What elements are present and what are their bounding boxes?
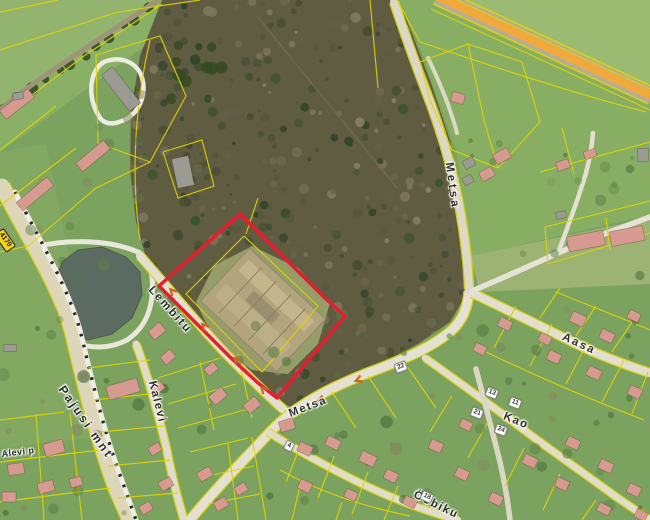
tree bbox=[135, 194, 144, 203]
tree bbox=[35, 326, 40, 331]
tree bbox=[355, 331, 360, 336]
tree bbox=[197, 425, 207, 435]
tree bbox=[635, 271, 644, 280]
tree bbox=[98, 259, 109, 270]
tree bbox=[630, 156, 635, 161]
tree bbox=[625, 333, 631, 339]
tree bbox=[251, 321, 261, 331]
tree bbox=[608, 184, 619, 195]
tree bbox=[334, 432, 341, 439]
tree bbox=[600, 162, 611, 173]
tree bbox=[95, 123, 103, 131]
tree bbox=[328, 457, 333, 462]
tree bbox=[83, 178, 93, 188]
tree bbox=[25, 224, 36, 235]
tree bbox=[71, 424, 83, 436]
tree bbox=[77, 272, 82, 277]
barn bbox=[555, 211, 566, 220]
tree bbox=[66, 222, 75, 231]
tree bbox=[547, 178, 556, 187]
barn bbox=[4, 345, 17, 352]
tree bbox=[468, 138, 473, 143]
tree bbox=[300, 496, 309, 505]
tree bbox=[266, 492, 273, 499]
barn bbox=[12, 92, 24, 101]
tree bbox=[333, 371, 340, 378]
tree bbox=[339, 431, 347, 439]
tree bbox=[455, 333, 462, 340]
tree bbox=[629, 353, 635, 359]
tree bbox=[134, 136, 144, 146]
tree bbox=[207, 42, 216, 51]
tree bbox=[92, 430, 102, 440]
tree bbox=[595, 194, 606, 205]
tree bbox=[3, 510, 9, 516]
tree bbox=[401, 350, 407, 356]
tree bbox=[626, 165, 634, 173]
tree bbox=[132, 398, 145, 411]
barn bbox=[638, 149, 649, 162]
tree bbox=[447, 333, 453, 339]
tree bbox=[529, 443, 541, 455]
tree bbox=[549, 392, 557, 400]
map-viewport[interactable]: LembituKaleviPajusi mntMetsaMetsaAasaKao… bbox=[0, 0, 650, 520]
tree bbox=[593, 420, 599, 426]
tree bbox=[505, 377, 513, 385]
tree bbox=[477, 459, 489, 471]
tree bbox=[174, 41, 183, 50]
tree bbox=[475, 423, 486, 434]
tree bbox=[608, 412, 614, 418]
tree bbox=[48, 503, 58, 513]
tree bbox=[520, 250, 527, 257]
tree bbox=[422, 488, 432, 498]
tree bbox=[550, 249, 558, 257]
tree bbox=[390, 442, 403, 455]
tree bbox=[123, 113, 134, 124]
tree bbox=[80, 373, 88, 381]
tree bbox=[58, 257, 66, 265]
tree bbox=[142, 153, 148, 159]
tree bbox=[137, 90, 146, 99]
tree bbox=[166, 93, 177, 104]
tree bbox=[364, 334, 368, 338]
tree bbox=[563, 153, 568, 158]
tree bbox=[104, 378, 110, 384]
tree bbox=[522, 382, 526, 386]
tree bbox=[380, 416, 393, 429]
tree bbox=[282, 357, 291, 366]
tree bbox=[121, 510, 126, 515]
tree bbox=[206, 62, 219, 75]
tree bbox=[208, 404, 213, 409]
tree bbox=[46, 330, 56, 340]
tree bbox=[56, 316, 63, 323]
tree bbox=[4, 231, 8, 235]
tree bbox=[476, 324, 488, 336]
tree bbox=[35, 225, 43, 233]
house bbox=[2, 492, 16, 502]
tree bbox=[496, 343, 505, 352]
tree bbox=[268, 347, 280, 359]
tree bbox=[564, 306, 571, 313]
tree bbox=[21, 505, 27, 511]
tree bbox=[40, 399, 44, 403]
tree bbox=[429, 393, 435, 399]
tree bbox=[535, 351, 540, 356]
tree bbox=[575, 177, 583, 185]
house bbox=[7, 462, 24, 475]
tree bbox=[562, 449, 572, 459]
tree bbox=[496, 140, 503, 147]
tree bbox=[549, 415, 556, 422]
tree bbox=[5, 428, 12, 435]
tree bbox=[537, 461, 547, 471]
aerial-map-layer bbox=[0, 0, 650, 520]
